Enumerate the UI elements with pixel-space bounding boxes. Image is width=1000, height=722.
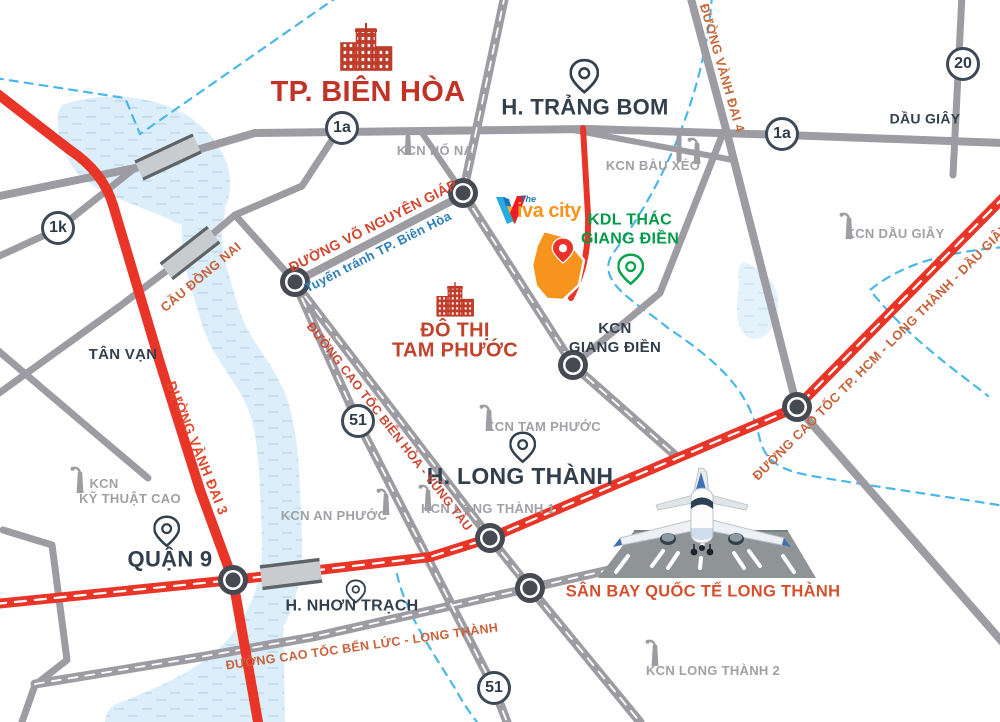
- road-20: [953, 0, 962, 175]
- route-badge-20: 20: [946, 47, 980, 81]
- road-left-minor: [0, 348, 148, 478]
- location-map: 1a 1a 1k 20 51 51 TP. BIÊN HÒA H. TRẢNG …: [0, 0, 1000, 722]
- label-do-thi-tam-phuoc-2: TAM PHƯỚC: [392, 341, 518, 362]
- label-h-nhon-trach: H. NHƠN TRẠCH: [285, 599, 418, 616]
- label-kcn-bau-xeo: KCN BÀU XÉO: [606, 159, 700, 173]
- road-vo-nguyen-giap: [295, 194, 465, 282]
- label-kcn-ky-thuat-cao-1: KCN: [89, 477, 118, 491]
- tam-phuoc-building-icon: [437, 282, 473, 316]
- factory-icon-long-thanh-2: [646, 640, 659, 666]
- route-badge-1a-west: 1a: [325, 111, 359, 145]
- label-tan-van: TÂN VẠN: [89, 347, 158, 363]
- route-badge-1a-east: 1a: [765, 117, 799, 151]
- label-san-bay-long-thanh: SÂN BAY QUỐC TẾ LONG THÀNH: [566, 583, 841, 600]
- label-h-trang-bom: H. TRẢNG BOM: [501, 95, 668, 118]
- label-kcn-dau-giay: KCN DẦU GIÂY: [846, 227, 945, 241]
- factory-icon-ky-thuat-cao: [71, 467, 84, 493]
- route-badge-51-south: 51: [477, 671, 511, 705]
- viva-logo-name: iva city: [517, 200, 581, 223]
- label-kcn-ho-nai: KCN HỐ NAI: [397, 144, 477, 158]
- label-kcn-an-phuoc: KCN AN PHƯỚC: [281, 509, 388, 523]
- pin-quan-9: [154, 517, 179, 546]
- pin-trang-bom: [571, 60, 598, 92]
- label-kcn-giang-dien-2: GIANG ĐIỀN: [569, 340, 661, 356]
- label-h-long-thanh: H. LONG THÀNH: [427, 464, 614, 488]
- label-kdl-thac-giang-dien-2: GIANG ĐIỀN: [581, 232, 679, 249]
- pin-kdl-giang-dien: [618, 255, 643, 284]
- label-kcn-long-thanh-2: KCN LONG THÀNH 2: [646, 664, 780, 678]
- label-kcn-ky-thuat-cao-2: KỸ THUẬT CAO: [79, 492, 181, 506]
- bien-hoa-building-icon: [341, 23, 392, 70]
- pin-long-thanh: [510, 433, 535, 462]
- river-dong-nai: [58, 97, 779, 722]
- label-kdl-thac-giang-dien-1: KDL THÁC: [588, 213, 672, 230]
- label-quan-9: QUẬN 9: [128, 547, 213, 570]
- label-do-thi-tam-phuoc-1: ĐÔ THỊ: [420, 321, 490, 342]
- label-tp-bien-hoa: TP. BIÊN HÒA: [271, 77, 466, 107]
- label-kcn-giang-dien-1: KCN: [598, 321, 631, 337]
- label-kcn-tam-phuoc: KCN TAM PHƯỚC: [485, 420, 601, 434]
- route-badge-1k: 1k: [41, 211, 75, 245]
- road-bottom-left-curve: [3, 530, 67, 722]
- label-dau-giay: DẦU GIÂY: [890, 112, 961, 127]
- airport-graphic: [598, 468, 816, 578]
